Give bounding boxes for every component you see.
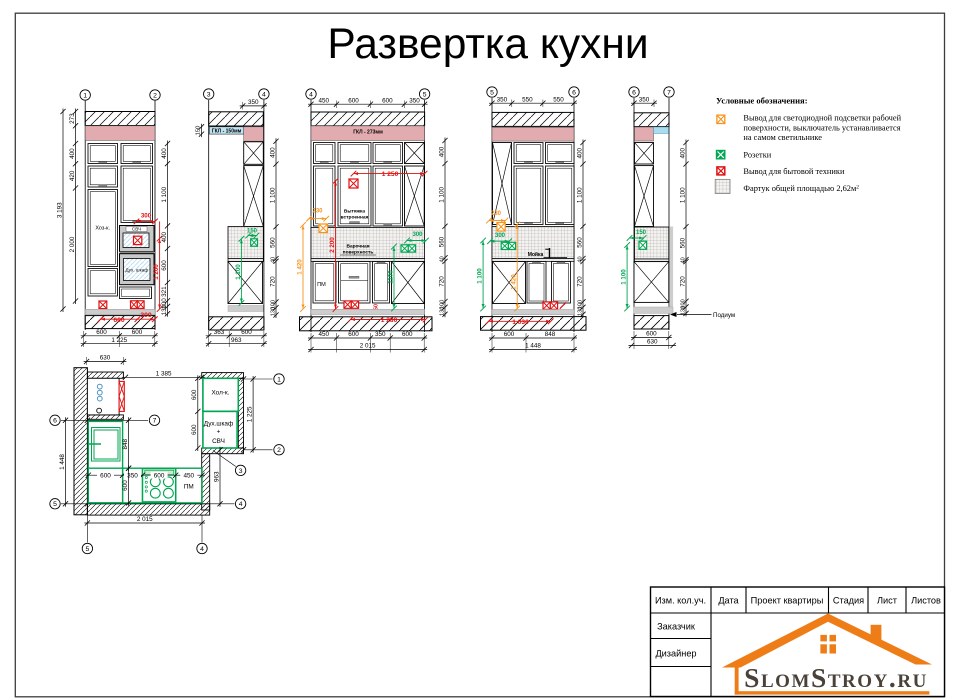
svg-text:130: 130 bbox=[270, 307, 276, 316]
svg-text:3: 3 bbox=[239, 468, 243, 475]
svg-text:Стадия: Стадия bbox=[833, 596, 864, 606]
svg-text:600: 600 bbox=[122, 480, 129, 491]
svg-text:130: 130 bbox=[439, 307, 445, 316]
svg-text:300: 300 bbox=[412, 232, 423, 238]
svg-text:Хол-к.: Хол-к. bbox=[211, 390, 229, 397]
svg-text:600: 600 bbox=[402, 331, 413, 338]
svg-text:Листов: Листов bbox=[911, 596, 941, 606]
svg-text:600: 600 bbox=[241, 329, 252, 336]
svg-text:300: 300 bbox=[495, 233, 506, 239]
svg-text:ПМ: ПМ bbox=[317, 282, 326, 288]
svg-text:130: 130 bbox=[680, 306, 686, 315]
svg-text:1: 1 bbox=[83, 92, 87, 99]
svg-text:2 000: 2 000 bbox=[69, 236, 76, 252]
svg-text:130: 130 bbox=[577, 307, 583, 316]
svg-text:Мойка: Мойка bbox=[528, 251, 544, 258]
svg-text:963: 963 bbox=[231, 337, 242, 344]
svg-text:Подиум: Подиум bbox=[713, 312, 735, 319]
svg-text:450: 450 bbox=[183, 473, 194, 480]
svg-text:1 448: 1 448 bbox=[59, 454, 66, 470]
svg-text:1 100: 1 100 bbox=[576, 187, 583, 203]
svg-text:Фартук общей площадью 2,62м2: Фартук общей площадью 2,62м2 bbox=[743, 184, 859, 193]
svg-text:600: 600 bbox=[382, 97, 393, 104]
svg-text:363: 363 bbox=[214, 329, 225, 336]
svg-text:300: 300 bbox=[141, 212, 152, 219]
svg-text:600: 600 bbox=[191, 389, 198, 400]
svg-text:4: 4 bbox=[262, 91, 266, 98]
svg-text:СВЧ: СВЧ bbox=[132, 227, 141, 232]
svg-text:СВЧ: СВЧ bbox=[212, 438, 225, 445]
svg-text:ПМ: ПМ bbox=[184, 484, 194, 491]
svg-text:230: 230 bbox=[312, 209, 323, 215]
svg-text:350: 350 bbox=[248, 99, 259, 106]
svg-text:1 030: 1 030 bbox=[512, 319, 529, 326]
svg-text:Дизайнер: Дизайнер bbox=[655, 649, 696, 659]
svg-text:600: 600 bbox=[113, 317, 125, 324]
svg-text:Изм. кол.уч.: Изм. кол.уч. bbox=[655, 596, 706, 606]
svg-text:5: 5 bbox=[490, 89, 494, 96]
svg-text:1 420: 1 420 bbox=[511, 274, 518, 290]
svg-text:350: 350 bbox=[409, 97, 420, 104]
svg-text:ГКЛ - 273мм: ГКЛ - 273мм bbox=[353, 130, 383, 136]
svg-text:630: 630 bbox=[100, 355, 111, 362]
svg-text:4: 4 bbox=[239, 501, 243, 508]
svg-text:1 100: 1 100 bbox=[438, 187, 445, 203]
svg-text:150: 150 bbox=[636, 230, 647, 236]
svg-text:560: 560 bbox=[438, 236, 445, 247]
svg-text:1 225: 1 225 bbox=[247, 406, 254, 422]
svg-text:450: 450 bbox=[318, 331, 329, 338]
svg-text:2 015: 2 015 bbox=[360, 343, 376, 350]
svg-text:2: 2 bbox=[153, 92, 157, 99]
svg-text:600: 600 bbox=[348, 97, 359, 104]
svg-text:Вытяжка: Вытяжка bbox=[344, 209, 366, 215]
svg-text:1 100: 1 100 bbox=[161, 186, 168, 202]
svg-text:Проект квартиры: Проект квартиры bbox=[751, 596, 824, 606]
svg-text:SlomStroy.ru: SlomStroy.ru bbox=[744, 662, 928, 693]
svg-text:350: 350 bbox=[497, 96, 508, 103]
svg-text:300: 300 bbox=[140, 312, 152, 319]
svg-text:1 448: 1 448 bbox=[525, 343, 541, 350]
svg-text:3 193: 3 193 bbox=[56, 202, 63, 218]
svg-text:3: 3 bbox=[207, 91, 211, 98]
svg-text:4: 4 bbox=[200, 546, 204, 553]
svg-text:Вывод для бытовой техники: Вывод для бытовой техники bbox=[743, 167, 845, 176]
svg-text:2 200: 2 200 bbox=[329, 237, 336, 253]
svg-text:Условные обозначения:: Условные обозначения: bbox=[716, 96, 808, 106]
svg-text:130: 130 bbox=[161, 304, 168, 315]
svg-text:600: 600 bbox=[348, 331, 359, 338]
svg-text:40: 40 bbox=[680, 257, 686, 263]
svg-text:5: 5 bbox=[423, 91, 427, 98]
svg-text:+: + bbox=[217, 429, 221, 436]
svg-text:встроенная: встроенная bbox=[341, 216, 369, 221]
svg-text:350: 350 bbox=[639, 96, 650, 103]
svg-text:600: 600 bbox=[96, 329, 107, 336]
svg-text:Хоз-к.: Хоз-к. bbox=[95, 226, 110, 232]
svg-text:321: 321 bbox=[161, 286, 168, 297]
svg-text:400: 400 bbox=[438, 146, 445, 157]
svg-text:Развертка кухни: Развертка кухни bbox=[327, 21, 648, 68]
svg-text:848: 848 bbox=[545, 331, 556, 338]
svg-text:Розетки: Розетки bbox=[743, 150, 771, 159]
svg-text:600: 600 bbox=[646, 331, 657, 338]
svg-text:6: 6 bbox=[632, 89, 636, 96]
svg-text:600: 600 bbox=[161, 260, 168, 271]
svg-text:ГКЛ - 150мм: ГКЛ - 150мм bbox=[212, 128, 242, 134]
svg-text:600: 600 bbox=[132, 329, 143, 336]
svg-text:Варочная: Варочная bbox=[346, 244, 369, 250]
svg-text:1 100: 1 100 bbox=[235, 264, 242, 280]
svg-text:поверхности, выключатель устан: поверхности, выключатель устанавливается bbox=[743, 123, 900, 132]
svg-text:848: 848 bbox=[122, 439, 129, 450]
svg-text:40: 40 bbox=[270, 257, 276, 263]
svg-text:40: 40 bbox=[577, 256, 583, 262]
svg-text:Заказчик: Заказчик bbox=[657, 622, 696, 632]
svg-text:420: 420 bbox=[69, 170, 76, 181]
svg-text:400: 400 bbox=[576, 148, 583, 159]
svg-text:40: 40 bbox=[439, 256, 445, 262]
svg-text:1 385: 1 385 bbox=[156, 370, 172, 377]
svg-text:550: 550 bbox=[553, 96, 564, 103]
svg-text:6: 6 bbox=[572, 89, 576, 96]
svg-text:230: 230 bbox=[491, 211, 502, 217]
svg-text:963: 963 bbox=[213, 471, 220, 482]
svg-text:Дата: Дата bbox=[718, 596, 739, 606]
svg-text:560: 560 bbox=[269, 237, 276, 248]
svg-text:5: 5 bbox=[53, 501, 57, 508]
svg-text:4: 4 bbox=[309, 91, 313, 98]
svg-text:720: 720 bbox=[269, 276, 276, 287]
svg-text:5: 5 bbox=[86, 546, 90, 553]
svg-text:720: 720 bbox=[576, 276, 583, 287]
svg-text:400: 400 bbox=[679, 148, 686, 159]
svg-text:600: 600 bbox=[100, 473, 111, 480]
svg-text:1 250: 1 250 bbox=[382, 171, 399, 178]
svg-text:1: 1 bbox=[277, 376, 281, 383]
svg-text:350: 350 bbox=[375, 331, 386, 338]
svg-text:630: 630 bbox=[647, 339, 658, 346]
svg-text:400: 400 bbox=[161, 231, 168, 242]
svg-text:150: 150 bbox=[247, 229, 258, 235]
svg-text:Дух. шкаф: Дух. шкаф bbox=[126, 268, 149, 273]
svg-text:560: 560 bbox=[679, 237, 686, 248]
svg-text:720: 720 bbox=[679, 276, 686, 287]
svg-text:150: 150 bbox=[196, 126, 202, 136]
svg-text:2: 2 bbox=[277, 447, 281, 454]
svg-text:1 100: 1 100 bbox=[477, 268, 484, 284]
svg-text:400: 400 bbox=[269, 147, 276, 158]
svg-text:1100: 1100 bbox=[387, 270, 394, 284]
svg-text:600: 600 bbox=[191, 424, 198, 435]
svg-text:1 100: 1 100 bbox=[621, 269, 628, 285]
svg-text:1 280: 1 280 bbox=[381, 317, 398, 324]
svg-text:720: 720 bbox=[438, 276, 445, 287]
svg-text:6: 6 bbox=[53, 418, 57, 425]
svg-text:Дух.шкаф: Дух.шкаф bbox=[204, 421, 234, 428]
svg-text:2 015: 2 015 bbox=[137, 516, 153, 523]
svg-text:Лист: Лист bbox=[877, 596, 898, 606]
svg-text:400: 400 bbox=[161, 148, 168, 159]
svg-text:Вывод для светодиодной подсвет: Вывод для светодиодной подсветки рабочей bbox=[743, 114, 901, 123]
svg-text:1 100: 1 100 bbox=[269, 187, 276, 203]
svg-text:600: 600 bbox=[504, 331, 515, 338]
svg-text:550: 550 bbox=[522, 96, 533, 103]
svg-text:7: 7 bbox=[667, 89, 671, 96]
svg-text:600: 600 bbox=[154, 473, 165, 480]
svg-text:7: 7 bbox=[153, 418, 157, 425]
svg-text:на самом светильнике: на самом светильнике bbox=[743, 133, 822, 142]
svg-text:1 420: 1 420 bbox=[296, 259, 303, 275]
svg-text:273: 273 bbox=[69, 113, 76, 124]
svg-text:1 100: 1 100 bbox=[679, 187, 686, 203]
svg-text:560: 560 bbox=[576, 237, 583, 248]
svg-text:400: 400 bbox=[69, 148, 76, 159]
svg-text:450: 450 bbox=[318, 97, 329, 104]
svg-text:1 200: 1 200 bbox=[153, 264, 160, 280]
